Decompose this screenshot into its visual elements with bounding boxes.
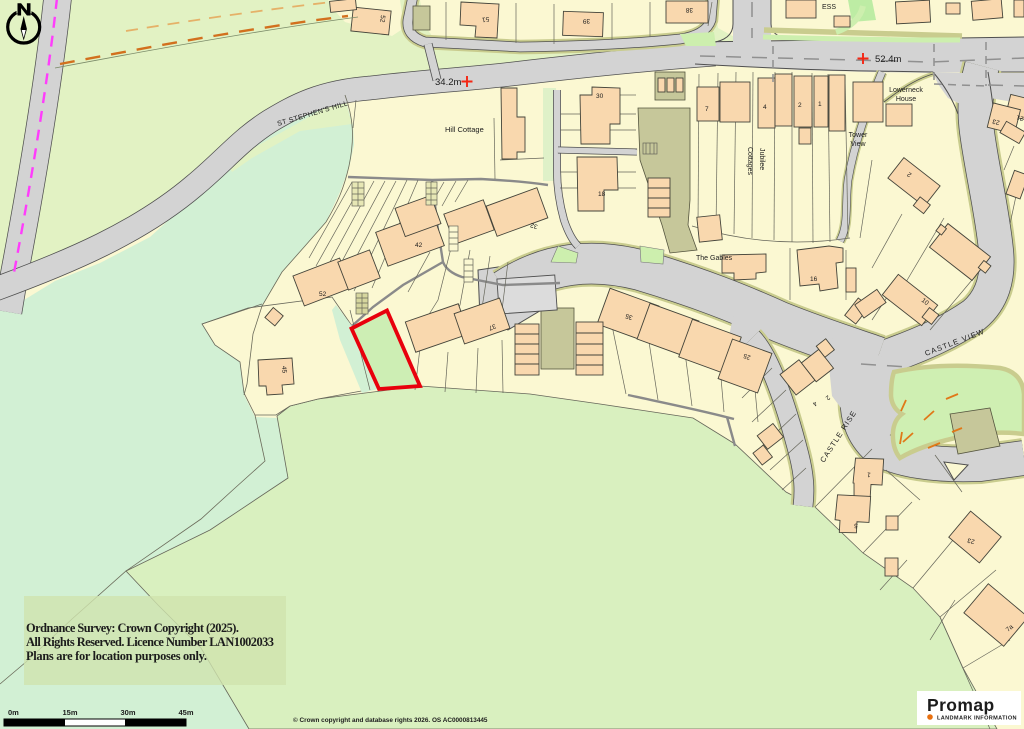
svg-text:42: 42	[415, 242, 423, 249]
svg-text:The Gables: The Gables	[696, 255, 733, 262]
svg-text:Tower: Tower	[849, 132, 868, 139]
svg-text:Lowerneck: Lowerneck	[889, 87, 923, 94]
svg-text:© Crown copyright and database: © Crown copyright and database rights 20…	[293, 716, 488, 724]
svg-text:House: House	[896, 96, 916, 103]
svg-text:15m: 15m	[62, 708, 77, 717]
svg-text:38: 38	[685, 6, 693, 13]
svg-text:0m: 0m	[8, 708, 19, 717]
svg-text:45: 45	[280, 366, 287, 374]
svg-text:52: 52	[319, 291, 327, 298]
svg-text:Jubilee: Jubilee	[758, 148, 765, 170]
svg-text:52: 52	[378, 15, 386, 23]
svg-text:4: 4	[763, 104, 767, 111]
svg-text:Cottages: Cottages	[746, 147, 753, 176]
svg-text:7: 7	[705, 106, 709, 113]
svg-text:16: 16	[810, 276, 818, 283]
svg-text:52.4m: 52.4m	[875, 54, 901, 65]
svg-text:30m: 30m	[120, 708, 135, 717]
svg-text:Ordnance Survey: Crown Copyrig: Ordnance Survey: Crown Copyright (2025).	[26, 621, 239, 635]
svg-text:39: 39	[582, 17, 590, 24]
svg-text:View: View	[850, 141, 866, 148]
svg-text:Plans are for location purpose: Plans are for location purposes only.	[26, 649, 207, 663]
svg-text:1: 1	[818, 101, 822, 108]
svg-text:Hill Cottage: Hill Cottage	[445, 125, 484, 134]
svg-text:LANDMARK INFORMATION: LANDMARK INFORMATION	[937, 716, 1017, 722]
svg-text:45m: 45m	[178, 708, 193, 717]
svg-text:30: 30	[596, 93, 604, 100]
svg-text:All Rights Reserved. Licence N: All Rights Reserved. Licence Number LAN1…	[26, 635, 274, 649]
svg-text:18: 18	[598, 191, 606, 198]
svg-text:34.2m: 34.2m	[435, 77, 461, 88]
svg-text:ESS: ESS	[822, 4, 836, 11]
svg-text:Promap: Promap	[927, 695, 995, 715]
svg-text:51: 51	[481, 15, 489, 23]
svg-text:2: 2	[798, 102, 802, 109]
